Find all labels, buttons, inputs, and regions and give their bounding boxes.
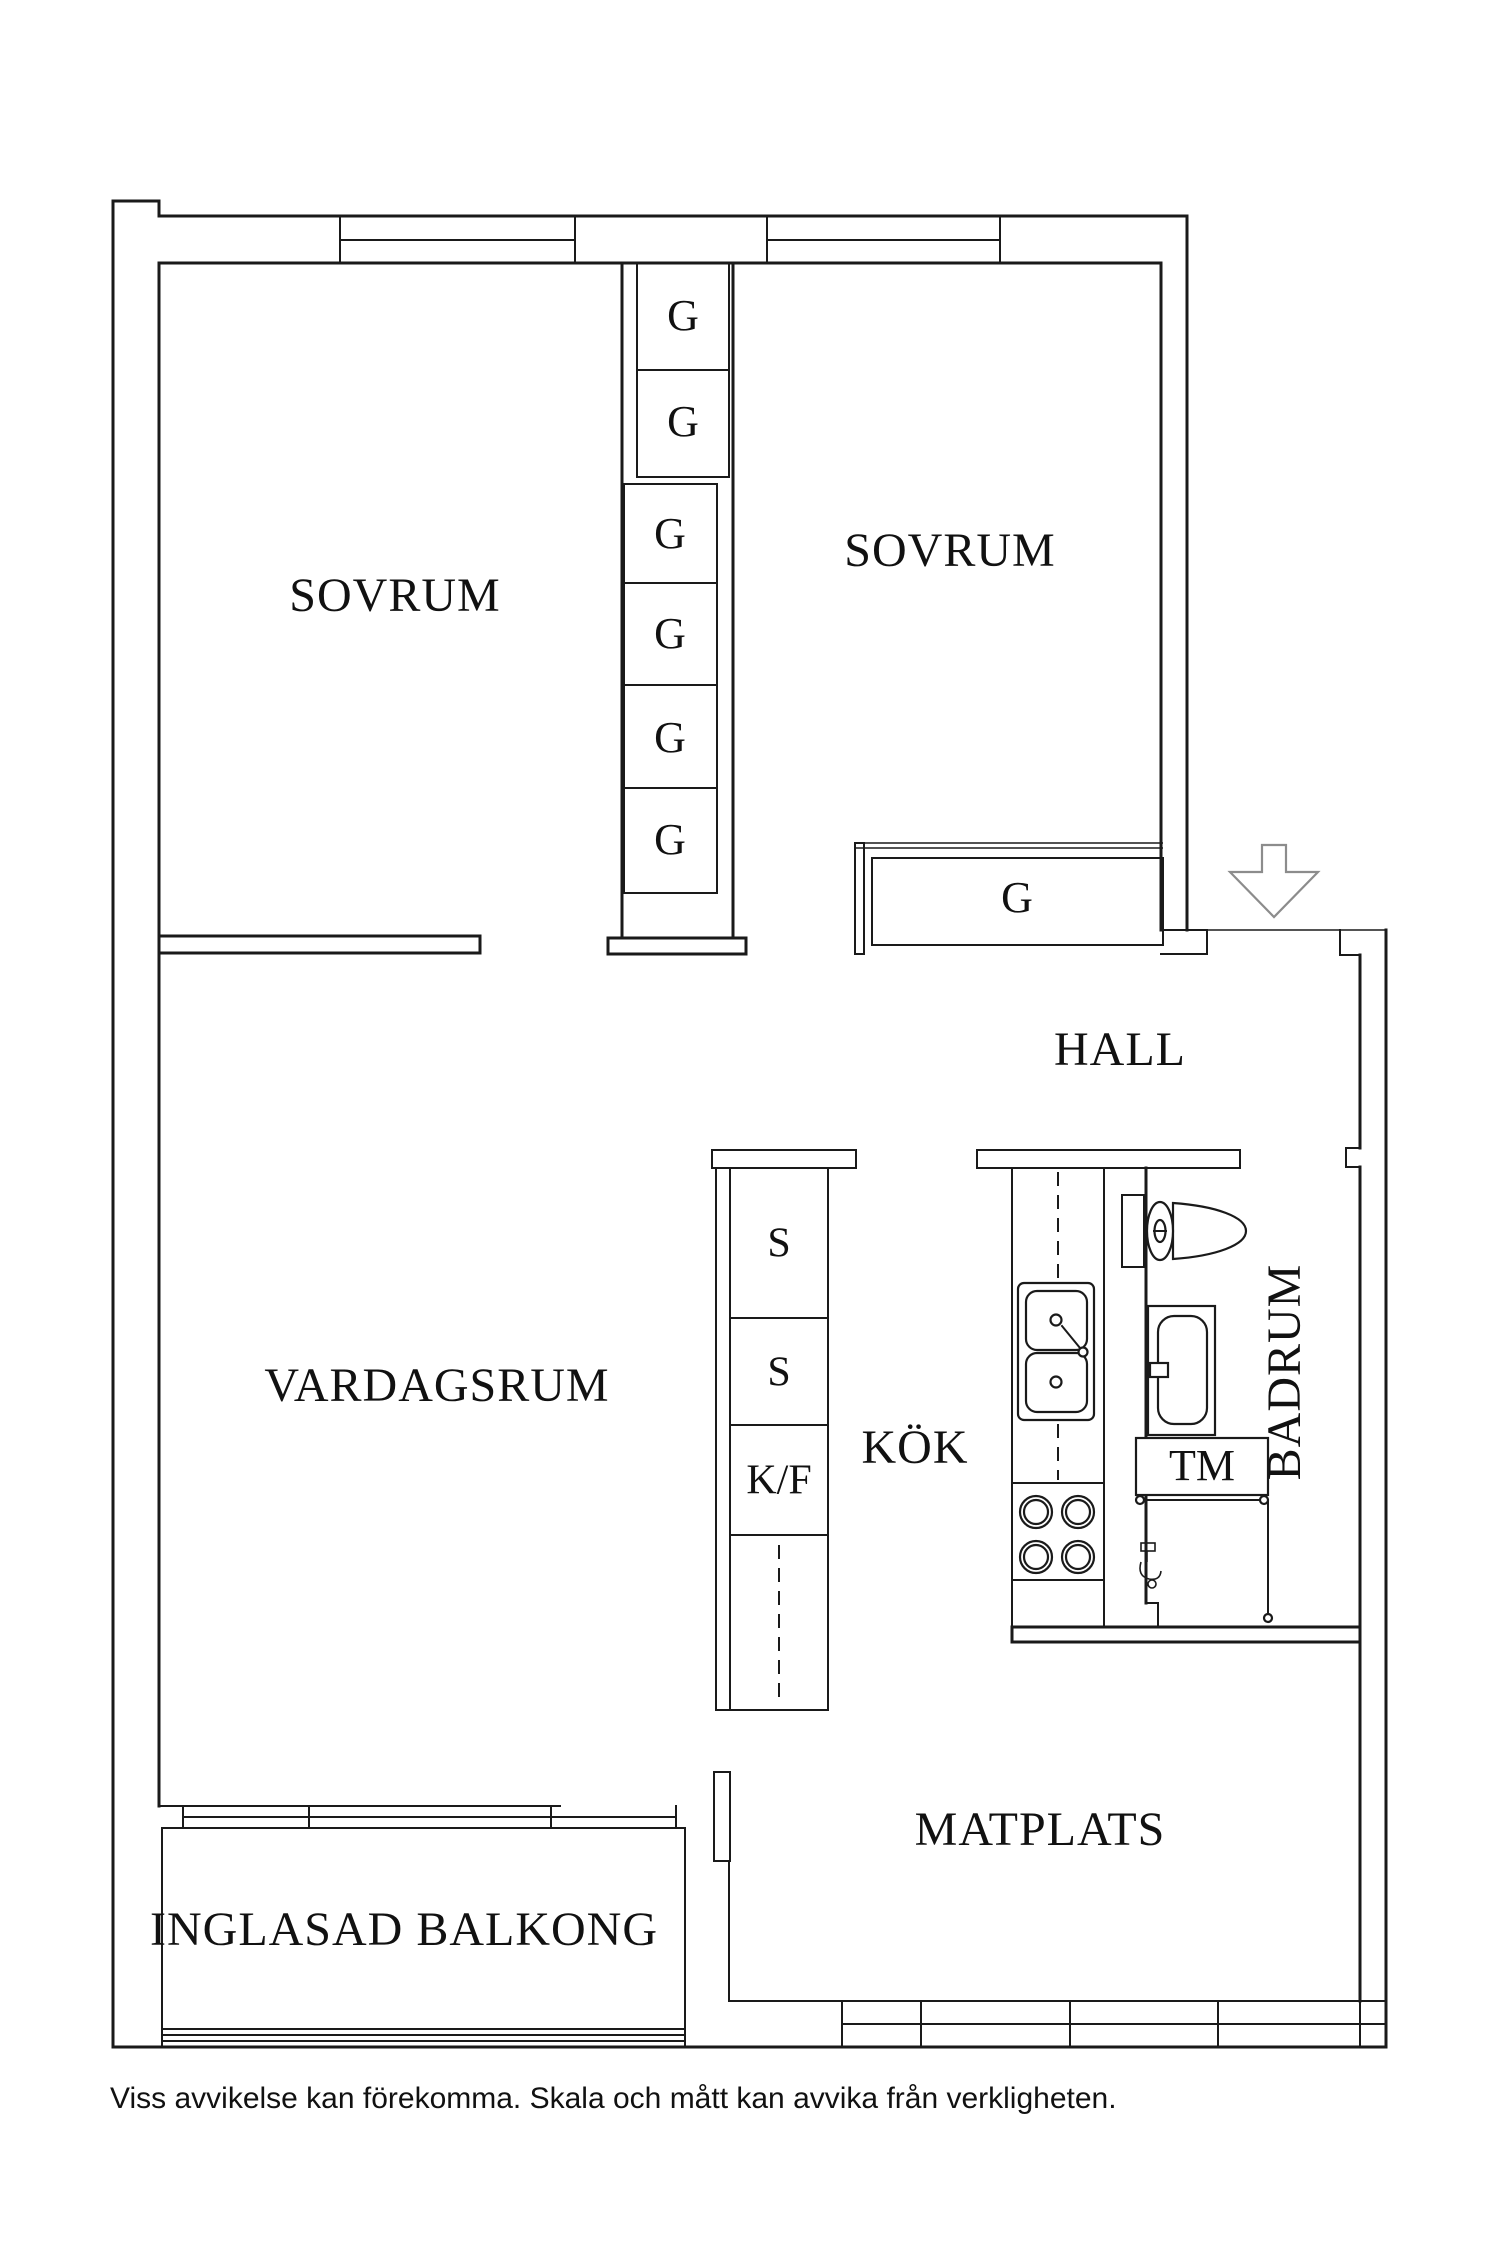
living-room-south-windows: [159, 1806, 685, 1828]
wardrobe-label-2: G: [667, 397, 699, 446]
room-label-bedroom2: SOVRUM: [844, 524, 1055, 577]
floor-drain-icon: [1140, 1543, 1161, 1588]
fridge-freezer-label: K/F: [746, 1458, 811, 1504]
room-label-balcony: INGLASAD BALKONG: [150, 1903, 658, 1956]
wardrobe-label-6: G: [654, 815, 686, 864]
cabinet-label-2: S: [767, 1350, 790, 1396]
room-label-kitchen: KÖK: [862, 1421, 969, 1474]
bedroom1-south-wall: [159, 936, 480, 953]
outer-walls: [113, 201, 1386, 2047]
wardrobe-label-4: G: [654, 609, 686, 658]
stove-icon: [1020, 1496, 1094, 1573]
wardrobe-label-5: G: [654, 713, 686, 762]
kitchen-sink-icon: [1018, 1283, 1094, 1420]
bathroom-sink-icon: [1148, 1306, 1215, 1435]
bedroom1-window-icon: [340, 216, 575, 263]
wardrobe-label-1: G: [667, 291, 699, 340]
cabinet-label-1: S: [767, 1221, 790, 1267]
room-label-bedroom1: SOVRUM: [289, 569, 500, 622]
toilet-icon: [1147, 1202, 1246, 1260]
room-label-dining: MATPLATS: [915, 1803, 1166, 1856]
disclaimer-text: Viss avvikelse kan förekomma. Skala och …: [110, 2082, 1117, 2115]
room-label-living-room: VARDAGSRUM: [264, 1359, 609, 1412]
hall-wardrobe-label: G: [1001, 873, 1033, 922]
room-label-hall: HALL: [1054, 1023, 1186, 1076]
floorplan-drawing: SOVRUM SOVRUM VARDAGSRUM KÖK HALL BADRUM…: [0, 0, 1500, 2250]
wardrobe-label-3: G: [654, 509, 686, 558]
vent-shaft: [1122, 1195, 1144, 1267]
washing-machine-label: TM: [1169, 1441, 1235, 1490]
room-label-bathroom: BADRUM: [1258, 1264, 1311, 1481]
floorplan-canvas: SOVRUM SOVRUM VARDAGSRUM KÖK HALL BADRUM…: [0, 0, 1500, 2250]
bedroom2-window-icon: [767, 216, 1000, 263]
entrance-arrow-icon: [1230, 845, 1318, 917]
